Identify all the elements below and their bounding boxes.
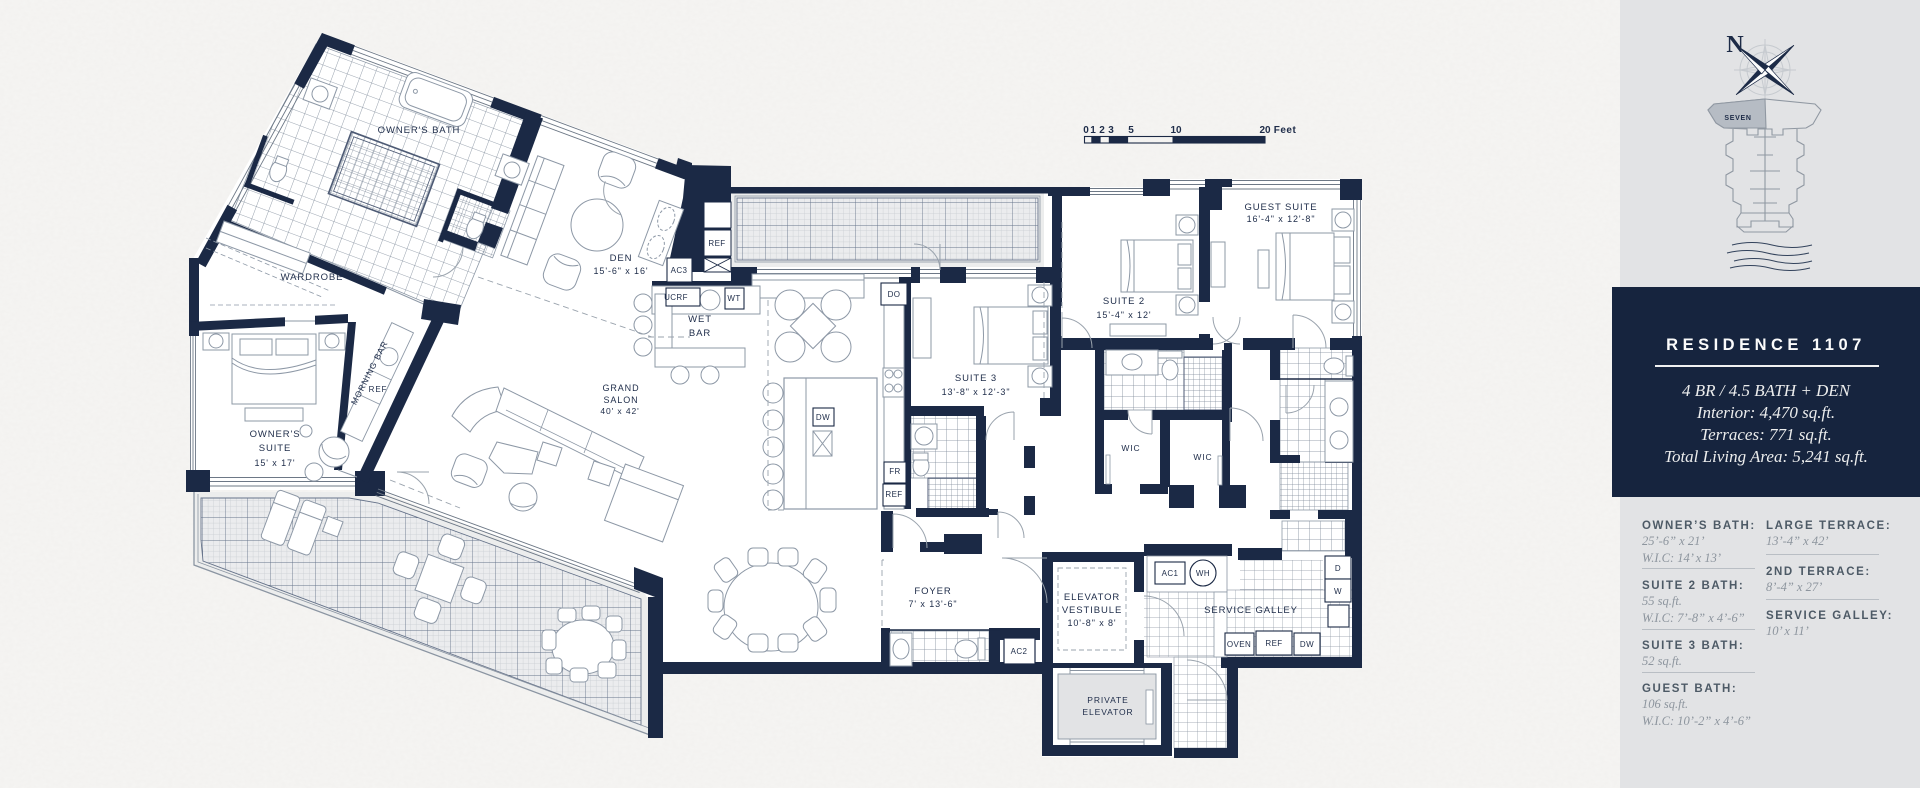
svg-text:AC1: AC1 xyxy=(1162,569,1179,578)
svg-text:OVEN: OVEN xyxy=(1227,640,1251,649)
svg-text:GUEST SUITE: GUEST SUITE xyxy=(1244,202,1317,213)
svg-text:FR: FR xyxy=(889,467,900,476)
svg-text:REF: REF xyxy=(1265,639,1282,648)
svg-text:WET: WET xyxy=(688,314,712,325)
svg-text:OWNER'S: OWNER'S xyxy=(250,429,301,440)
svg-text:2: 2 xyxy=(1099,125,1105,136)
svg-text:SUITE 3: SUITE 3 xyxy=(955,373,997,384)
svg-text:D: D xyxy=(1335,564,1341,573)
svg-text:20: 20 xyxy=(1259,125,1271,136)
svg-text:N: N xyxy=(1726,32,1744,58)
svg-text:GRAND: GRAND xyxy=(602,383,639,393)
svg-text:1: 1 xyxy=(1090,125,1096,136)
svg-text:0: 0 xyxy=(1083,125,1089,136)
svg-text:5: 5 xyxy=(1128,125,1134,136)
svg-text:15' x 17': 15' x 17' xyxy=(254,458,295,468)
svg-text:16'-4" x 12'-8": 16'-4" x 12'-8" xyxy=(1247,214,1316,224)
svg-text:15'-6" x 16': 15'-6" x 16' xyxy=(594,266,649,276)
svg-text:REF: REF xyxy=(885,490,902,499)
svg-text:DW: DW xyxy=(816,413,830,422)
svg-text:SALON: SALON xyxy=(603,395,638,405)
svg-text:W: W xyxy=(1334,587,1342,596)
svg-text:15'-4" x 12': 15'-4" x 12' xyxy=(1097,310,1152,320)
svg-text:PRIVATE: PRIVATE xyxy=(1087,695,1128,705)
svg-text:DEN: DEN xyxy=(610,253,633,264)
svg-text:SUITE 2: SUITE 2 xyxy=(1103,296,1145,307)
svg-text:10'-8" x 8': 10'-8" x 8' xyxy=(1067,618,1116,628)
svg-text:UCRF: UCRF xyxy=(664,293,688,302)
svg-text:DO: DO xyxy=(888,290,901,299)
svg-text:SUITE: SUITE xyxy=(259,443,291,454)
svg-text:Feet: Feet xyxy=(1274,125,1297,136)
svg-text:FOYER: FOYER xyxy=(914,586,951,597)
svg-text:10: 10 xyxy=(1170,125,1182,136)
svg-text:WIC: WIC xyxy=(1121,443,1140,453)
svg-text:VESTIBULE: VESTIBULE xyxy=(1062,605,1122,616)
svg-text:SERVICE GALLEY: SERVICE GALLEY xyxy=(1204,605,1298,616)
svg-text:7' x 13'-6": 7' x 13'-6" xyxy=(908,599,957,609)
svg-text:BAR: BAR xyxy=(689,328,711,339)
svg-text:ELEVATOR: ELEVATOR xyxy=(1082,707,1133,717)
svg-text:REF: REF xyxy=(369,385,388,394)
svg-text:AC3: AC3 xyxy=(671,266,688,275)
svg-text:3: 3 xyxy=(1108,125,1114,136)
svg-text:40' x 42': 40' x 42' xyxy=(600,406,639,416)
svg-text:WIC: WIC xyxy=(1193,452,1212,462)
svg-text:WARDROBE: WARDROBE xyxy=(281,272,344,283)
svg-text:REF: REF xyxy=(708,239,725,248)
svg-text:WT: WT xyxy=(727,294,740,303)
svg-text:13'-8" x 12'-3": 13'-8" x 12'-3" xyxy=(942,387,1011,397)
svg-text:OWNER'S BATH: OWNER'S BATH xyxy=(378,125,461,136)
svg-text:SEVEN: SEVEN xyxy=(1724,115,1751,122)
svg-text:AC2: AC2 xyxy=(1011,647,1028,656)
svg-text:DW: DW xyxy=(1300,640,1314,649)
svg-text:WH: WH xyxy=(1196,569,1210,578)
svg-text:ELEVATOR: ELEVATOR xyxy=(1064,592,1120,603)
